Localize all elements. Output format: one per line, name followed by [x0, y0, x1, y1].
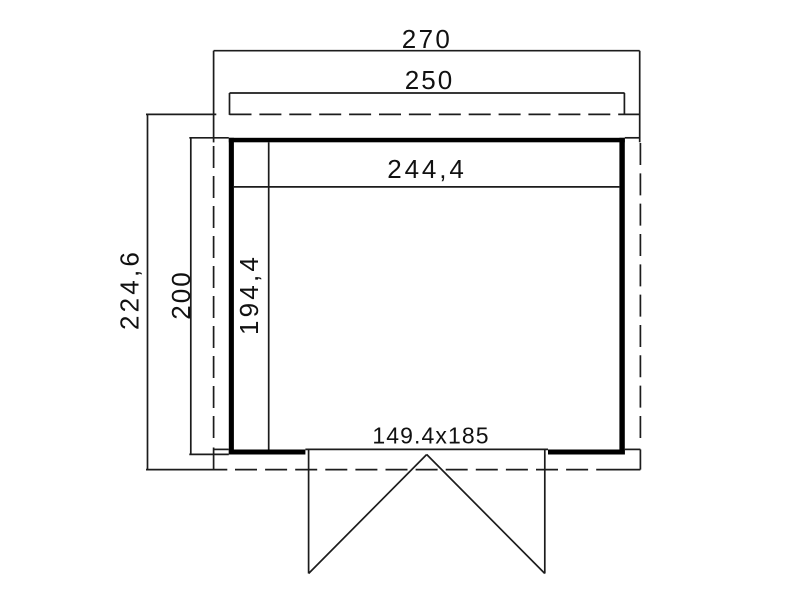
svg-text:270: 270	[402, 24, 453, 54]
svg-text:244,4: 244,4	[387, 154, 467, 184]
svg-text:250: 250	[405, 65, 454, 95]
svg-text:200: 200	[166, 270, 196, 319]
svg-text:224,6: 224,6	[115, 249, 145, 330]
svg-text:149.4x185: 149.4x185	[372, 422, 489, 448]
svg-text:194,4: 194,4	[234, 254, 264, 335]
